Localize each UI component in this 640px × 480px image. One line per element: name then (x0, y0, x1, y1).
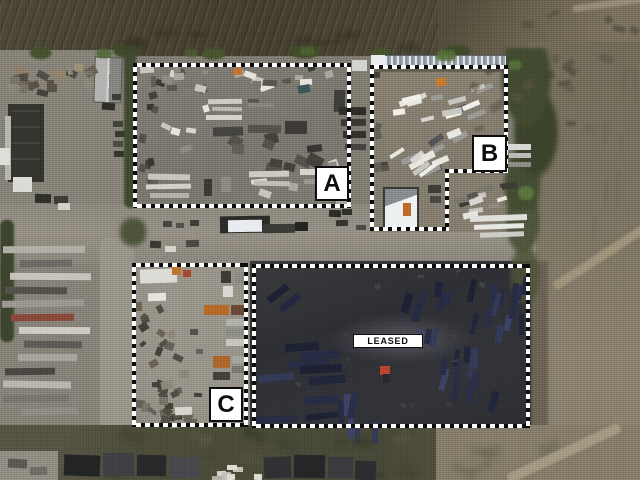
ground-object (371, 69, 506, 72)
ground-object (223, 286, 233, 297)
ground-object (151, 105, 159, 114)
ground-object (337, 401, 344, 423)
ground-object (345, 358, 350, 363)
ground-object (474, 125, 485, 132)
parcel-c-label-text: C (217, 391, 234, 419)
ground-object (204, 305, 229, 315)
ground-object (3, 380, 71, 388)
ground-object (5, 286, 67, 294)
ground-object (112, 94, 121, 100)
ground-object (175, 407, 192, 416)
ground-object (150, 193, 189, 198)
ground-object (148, 293, 166, 302)
parcel-c-edge-right (244, 263, 248, 427)
leased-edge-top (252, 264, 530, 268)
ground-object (324, 70, 333, 79)
ground-object (209, 245, 219, 251)
ground-object (170, 389, 180, 398)
ground-object (172, 266, 181, 275)
ground-object (113, 121, 123, 127)
ground-object (300, 364, 342, 374)
ground-object (467, 459, 493, 478)
leased-edge-right (526, 264, 530, 428)
ground-object (164, 340, 175, 350)
parcel-a-edge-left (133, 63, 137, 208)
ground-object (147, 406, 158, 416)
ground-object (431, 94, 444, 101)
ground-object (235, 273, 244, 283)
ground-object (294, 455, 325, 479)
aerial-site-photo: A B C LEASED (0, 0, 640, 480)
parcel-a-label: A (315, 166, 349, 201)
ground-object (263, 224, 295, 234)
ground-object (466, 109, 486, 121)
ground-object (445, 401, 451, 407)
ground-object (572, 0, 640, 13)
ground-object (14, 65, 27, 75)
ground-object (488, 203, 500, 209)
ground-object (12, 158, 40, 160)
ground-object (202, 105, 210, 113)
ground-object (22, 407, 78, 415)
ground-object (160, 122, 171, 131)
ground-object (453, 335, 457, 339)
parcel-b-edge-inner (445, 169, 449, 231)
ground-object (506, 422, 623, 480)
ground-object (374, 283, 380, 289)
parcel-a-edge-bottom (133, 204, 351, 208)
ground-object (179, 370, 190, 379)
ground-object (150, 241, 161, 248)
parcel-c-edge-top (132, 263, 248, 267)
ground-object (602, 122, 608, 144)
ground-object (35, 194, 51, 204)
ground-object (480, 231, 524, 238)
ground-object (221, 177, 231, 192)
ground-object (601, 81, 607, 114)
ground-object (519, 314, 524, 335)
ground-object (153, 27, 177, 39)
ground-object (592, 217, 596, 237)
ground-object (401, 292, 414, 313)
ground-object (19, 83, 29, 93)
ground-object (166, 85, 176, 92)
ground-object (248, 103, 274, 108)
ground-object (154, 346, 163, 356)
ground-object (352, 435, 372, 448)
ground-object (115, 131, 125, 137)
ground-object (83, 78, 95, 90)
ground-object (381, 165, 390, 172)
ground-object (30, 467, 47, 476)
ground-object (603, 182, 609, 201)
ground-object (263, 79, 277, 86)
ground-object (355, 461, 377, 480)
ground-object (243, 70, 256, 80)
parcel-b-label-text: B (481, 140, 498, 168)
ground-object (64, 454, 101, 476)
ground-object (297, 84, 310, 94)
ground-object (147, 158, 155, 167)
ground-object (507, 162, 531, 167)
ground-object (190, 220, 199, 226)
ground-object (74, 64, 83, 71)
ground-object (5, 367, 55, 375)
ground-object (196, 349, 203, 354)
ground-object (275, 436, 299, 454)
parcel-c-label: C (209, 387, 243, 422)
ground-object (176, 223, 184, 228)
ground-object (622, 68, 627, 94)
ground-objects (0, 0, 640, 480)
ground-object (190, 30, 206, 38)
ground-object (308, 374, 346, 385)
ground-object (341, 119, 366, 126)
ground-object (295, 381, 301, 387)
ground-object (471, 348, 479, 369)
parcel-a-edge-top (133, 63, 351, 67)
ground-object (52, 69, 67, 78)
ground-object (264, 457, 292, 479)
ground-object (20, 259, 72, 267)
ground-object (12, 126, 40, 128)
ground-object (342, 209, 352, 215)
ground-object (411, 302, 423, 322)
ground-object (485, 308, 492, 327)
ground-object (443, 291, 452, 306)
ground-object (3, 394, 70, 402)
ground-object (409, 402, 414, 408)
ground-object (585, 124, 595, 132)
ground-object (159, 397, 168, 405)
ground-object (212, 475, 223, 480)
ground-object (455, 269, 462, 274)
ground-object (206, 115, 242, 120)
ground-object (466, 379, 475, 402)
ground-object (599, 53, 615, 65)
ground-object (18, 354, 77, 361)
ground-object (400, 402, 406, 408)
ground-object (8, 459, 27, 469)
leased-edge-left (252, 264, 256, 428)
ground-object (243, 427, 266, 443)
ground-object (204, 453, 216, 462)
ground-object (436, 50, 456, 61)
ground-object (352, 60, 367, 71)
ground-object (213, 372, 230, 380)
ground-object (620, 134, 622, 153)
ground-object (190, 329, 198, 335)
ground-object (180, 144, 193, 154)
ground-object (24, 340, 82, 348)
ground-object (508, 60, 522, 70)
ground-object (306, 411, 339, 421)
parcel-b-edge-top (370, 65, 508, 69)
parcel-a-label-text: A (323, 170, 340, 198)
ground-object (626, 176, 631, 216)
ground-object (19, 327, 90, 334)
ground-object (186, 127, 197, 134)
ground-object (552, 222, 640, 291)
ground-object (160, 380, 173, 390)
ground-object (356, 225, 366, 230)
ground-object (496, 195, 507, 202)
ground-object (221, 271, 231, 283)
ground-object (3, 246, 85, 253)
ground-object (232, 143, 245, 155)
ground-object (167, 330, 176, 339)
ground-object (522, 78, 536, 92)
ground-object (252, 81, 262, 88)
ground-object (227, 465, 237, 470)
ground-object (163, 221, 172, 227)
ground-object (487, 390, 500, 412)
ground-object (278, 292, 301, 312)
ground-object (156, 304, 165, 314)
ground-object (624, 122, 627, 154)
ground-object (151, 76, 156, 87)
ground-object (316, 40, 343, 46)
ground-object (518, 300, 522, 303)
ground-object (240, 453, 265, 466)
ground-object (435, 77, 446, 86)
ground-object (58, 203, 70, 210)
ground-object (518, 186, 534, 200)
ground-object (183, 270, 191, 277)
ground-object (258, 189, 271, 200)
ground-object (194, 84, 207, 94)
ground-object (102, 103, 115, 111)
leased-edge-bottom (252, 424, 530, 428)
ground-object (165, 246, 176, 252)
ground-object (233, 68, 243, 76)
ground-object (533, 32, 549, 43)
ground-object (285, 121, 307, 134)
ground-object (46, 84, 57, 92)
ground-object (85, 71, 93, 76)
ground-object (506, 144, 531, 150)
ground-object (148, 174, 190, 181)
ground-object (339, 107, 366, 115)
ground-object (152, 382, 161, 388)
ground-object (578, 121, 581, 146)
ground-object (148, 358, 160, 369)
ground-object (248, 125, 281, 134)
ground-object (470, 214, 527, 222)
ground-object (212, 107, 242, 112)
ground-object (138, 133, 147, 144)
ground-object (467, 279, 478, 303)
ground-object (119, 428, 144, 444)
parcel-c-edge-left (132, 263, 136, 427)
ground-object (383, 374, 390, 383)
ground-object (113, 141, 123, 147)
ground-object (300, 47, 315, 55)
ground-object (254, 181, 290, 187)
ground-object (334, 435, 348, 449)
ground-object (138, 163, 147, 173)
ground-object (565, 86, 574, 93)
ground-object (120, 218, 146, 246)
ground-object (430, 196, 441, 203)
ground-object (66, 65, 73, 75)
ground-object (596, 132, 599, 158)
ground-object (114, 151, 124, 157)
ground-object (277, 82, 289, 92)
ground-object (254, 415, 298, 423)
ground-object (462, 100, 480, 111)
ground-object (336, 220, 348, 226)
ground-object (307, 144, 322, 153)
ground-object (328, 457, 353, 478)
ground-object (13, 177, 32, 192)
ground-object (12, 142, 40, 144)
ground-object (204, 179, 212, 196)
ground-object (633, 69, 638, 99)
ground-object (197, 151, 208, 159)
ground-object (471, 446, 487, 456)
ground-object (547, 52, 561, 61)
ground-object (393, 108, 406, 116)
ground-object (12, 110, 40, 112)
ground-object (258, 373, 294, 383)
ground-object (463, 346, 469, 363)
ground-object (173, 73, 184, 81)
ground-object (227, 474, 236, 480)
ground-object (185, 49, 198, 57)
ground-object (398, 463, 417, 480)
ground-object (96, 49, 112, 58)
ground-object (350, 217, 362, 223)
ground-object (0, 148, 10, 165)
parcel-b-label: B (472, 135, 507, 172)
ground-object (208, 99, 242, 105)
ground-object (11, 313, 74, 321)
ground-object (213, 126, 243, 136)
ground-object (343, 332, 349, 337)
ground-object (509, 153, 531, 158)
ground-object (254, 474, 263, 480)
ground-object (478, 282, 485, 289)
ground-object (10, 273, 91, 281)
ground-object (295, 222, 308, 231)
ground-object (546, 10, 559, 20)
ground-object (566, 121, 576, 127)
ground-object (604, 15, 613, 24)
ground-object (615, 169, 619, 203)
ground-object (347, 31, 362, 37)
parcel-c-edge-bottom (132, 423, 248, 427)
ground-object (146, 184, 191, 190)
parcel-b-edge-left (370, 65, 374, 231)
ground-object (304, 394, 337, 405)
ground-object (295, 36, 311, 45)
ground-object (391, 429, 413, 448)
ground-object (228, 220, 262, 233)
ground-object (169, 457, 200, 478)
ground-object (470, 313, 479, 334)
ground-object (10, 77, 20, 84)
leased-label-text: LEASED (367, 336, 408, 346)
ground-object (138, 321, 150, 332)
ground-object (269, 157, 282, 167)
ground-object (329, 210, 341, 217)
ground-object (510, 93, 523, 100)
ground-object (629, 25, 640, 36)
ground-object (186, 240, 199, 247)
ground-object (139, 341, 146, 348)
ground-object (249, 171, 289, 178)
ground-object (103, 453, 134, 477)
ground-object (428, 185, 441, 193)
ground-object (172, 354, 184, 364)
ground-object (202, 69, 209, 74)
ground-object (474, 223, 524, 230)
ground-object (373, 128, 383, 140)
ground-object (417, 274, 424, 279)
leased-label: LEASED (353, 334, 423, 348)
ground-object (502, 182, 517, 189)
ground-object (421, 115, 434, 122)
ground-object (495, 325, 504, 343)
ground-object (522, 21, 534, 28)
ground-object (137, 455, 166, 477)
ground-object (180, 79, 194, 90)
ground-object (400, 42, 418, 51)
ground-object (2, 299, 84, 307)
ground-object (508, 302, 517, 320)
ground-object (156, 329, 166, 338)
ground-object (148, 91, 158, 100)
ground-object (543, 70, 554, 80)
parcel-b-edge-bottom (370, 227, 449, 231)
ground-object (612, 24, 626, 33)
ground-object (194, 393, 203, 398)
ground-object (213, 356, 230, 368)
ground-object (567, 58, 576, 67)
